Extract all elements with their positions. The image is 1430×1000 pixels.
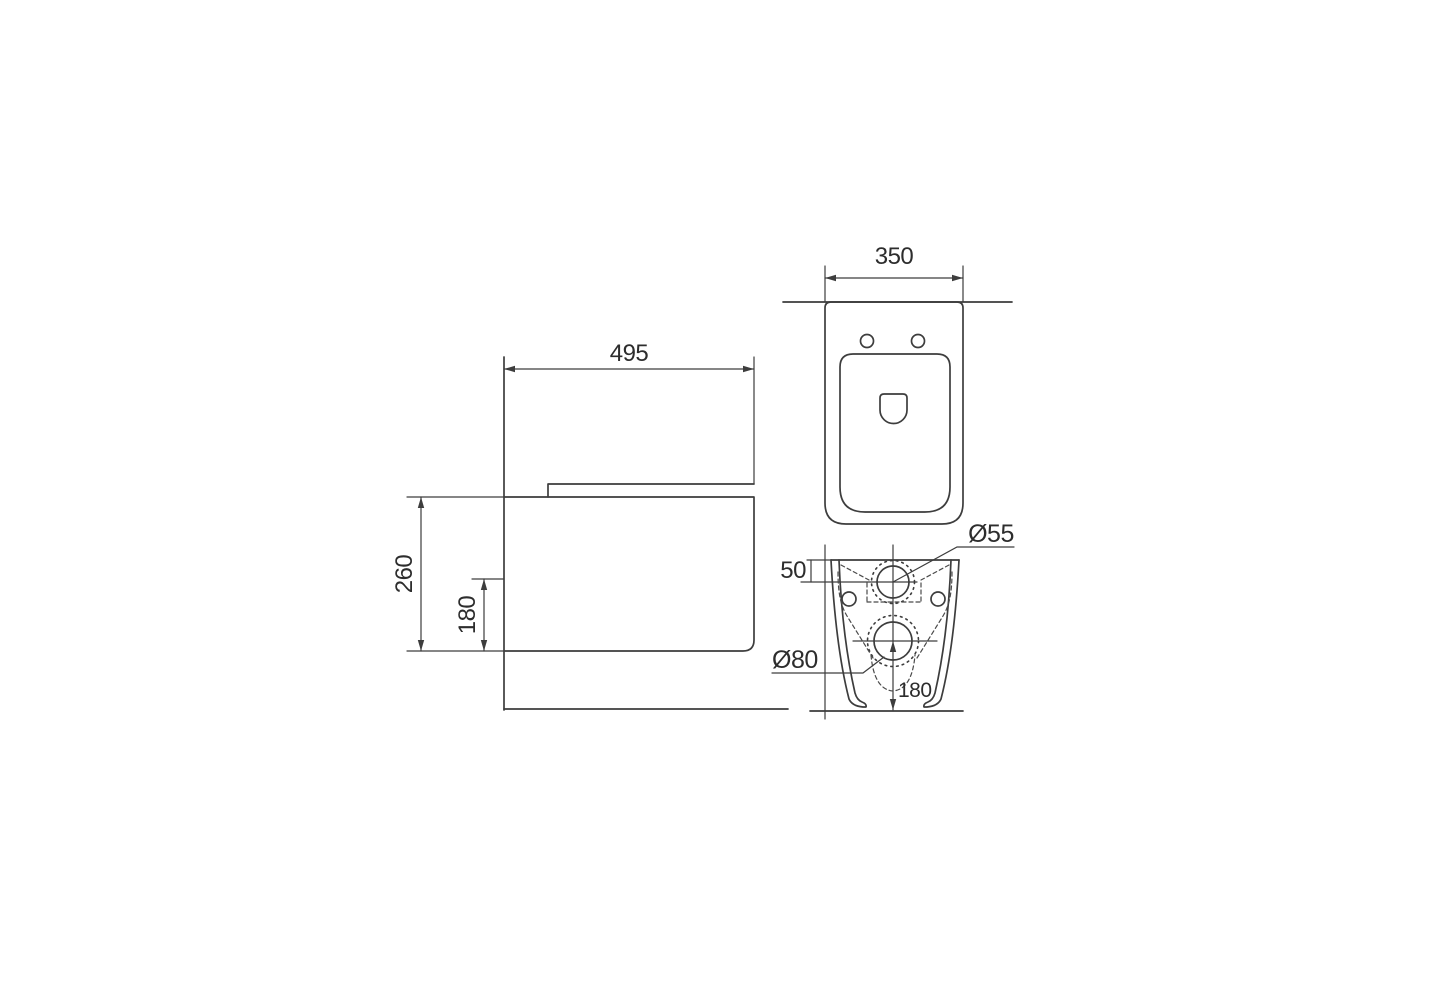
dim-arrow-up	[481, 579, 487, 590]
inlet-diameter-label: Ø55	[968, 520, 1014, 548]
dashed-funnel-right	[921, 565, 949, 580]
hinge-hole-right	[912, 335, 925, 348]
hinge-hole-left	[861, 335, 874, 348]
inlet-offset-dimension: 50	[780, 557, 831, 584]
dim-arrow-up	[418, 497, 424, 508]
dim-arrow-left	[825, 275, 836, 281]
depth-dimension-label: 495	[610, 340, 649, 367]
side-view: 495 260 180	[391, 340, 788, 710]
bowl-rim-outline	[840, 354, 950, 512]
outlet-diameter-callout: Ø80	[772, 646, 884, 674]
dim-arrow-down	[418, 640, 424, 651]
height-dimension: 260	[391, 497, 504, 651]
side-outlet-height-label: 180	[454, 596, 481, 635]
depth-dimension: 495	[504, 340, 754, 484]
technical-drawing-canvas: 495 260 180	[0, 0, 1430, 1000]
dashed-funnel-left	[841, 565, 869, 580]
width-dimension: 350	[825, 243, 963, 302]
dim-arrow-up	[890, 641, 896, 652]
top-view: 350	[783, 243, 1012, 524]
internal-dashed-lines	[838, 565, 952, 691]
plan-outer-outline	[825, 302, 963, 524]
outlet-diameter-label: Ø80	[772, 646, 818, 674]
width-dimension-label: 350	[875, 243, 914, 270]
dim-arrow-left	[504, 366, 515, 372]
inlet-offset-dimension-label: 50	[780, 557, 806, 584]
dim-arrow-right	[743, 366, 754, 372]
rear-outlet-height-label: 180	[898, 679, 932, 702]
inlet-diameter-callout: Ø55	[893, 520, 1014, 582]
side-outlet-height-dimension: 180	[454, 579, 504, 651]
inlet-leader-line	[893, 547, 1014, 582]
height-dimension-label: 260	[391, 555, 418, 594]
fixing-hole-right	[931, 592, 945, 606]
dim-arrow-down	[481, 640, 487, 651]
dim-arrow-right	[952, 275, 963, 281]
rear-view: 50 180 Ø55 Ø80	[772, 520, 1014, 719]
dim-arrow-down	[890, 699, 896, 710]
toilet-dimension-drawing: 495 260 180	[0, 0, 1430, 1000]
seat-lid-profile	[548, 484, 754, 497]
flush-outlet-outline	[880, 394, 907, 424]
fixing-hole-left	[842, 592, 856, 606]
body-profile	[504, 497, 754, 651]
